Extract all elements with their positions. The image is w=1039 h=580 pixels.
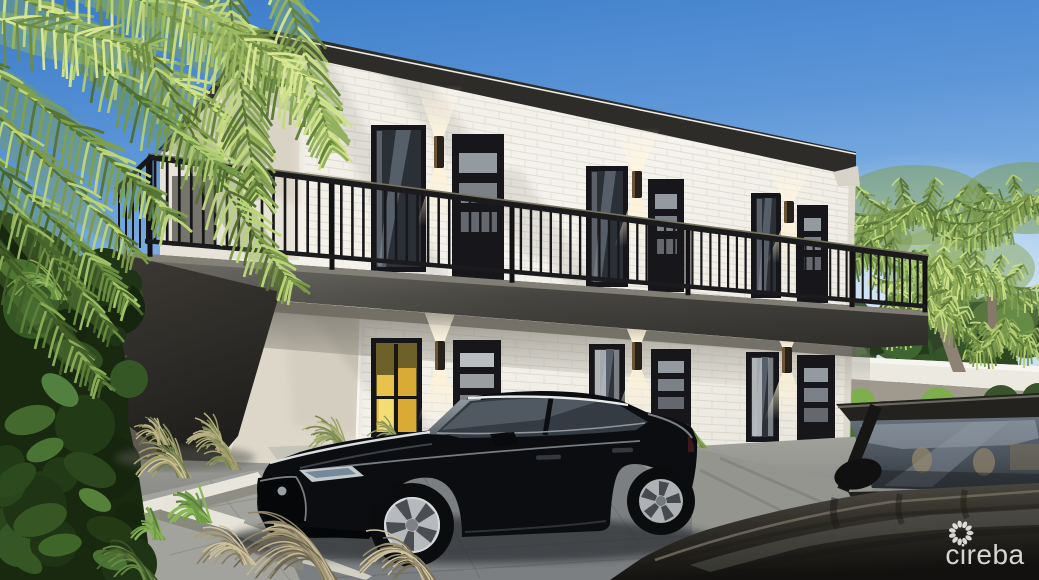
svg-text:cireba: cireba: [945, 539, 1024, 570]
